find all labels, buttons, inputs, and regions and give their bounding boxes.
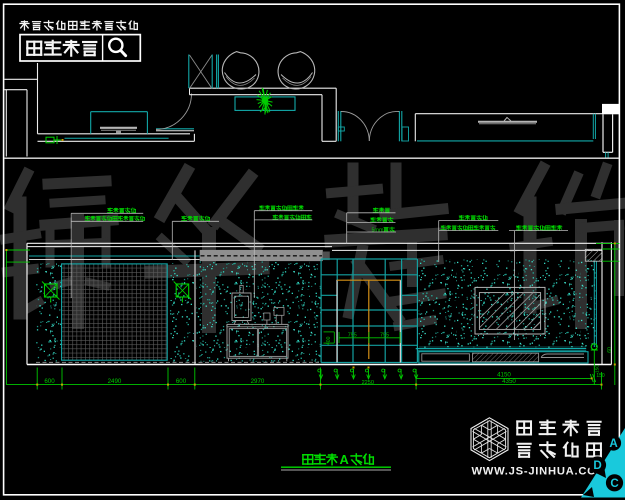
svg-text:5mm: 5mm [372, 228, 384, 234]
svg-text:C: C [610, 477, 619, 490]
svg-text:150: 150 [596, 373, 605, 379]
svg-text:WWW.JS-JINHUA.COM: WWW.JS-JINHUA.COM [472, 466, 607, 478]
svg-text:2250: 2250 [362, 380, 374, 386]
svg-text:4350: 4350 [502, 378, 516, 385]
svg-text:D: D [593, 459, 601, 472]
svg-text:60: 60 [607, 347, 613, 353]
svg-text:600: 600 [176, 378, 187, 385]
svg-text:755: 755 [380, 333, 389, 339]
svg-text:A: A [609, 437, 618, 450]
svg-text:A: A [340, 452, 349, 467]
svg-text:755: 755 [348, 333, 357, 339]
svg-text:2970: 2970 [251, 378, 265, 385]
svg-text:600: 600 [44, 378, 55, 385]
svg-text:400: 400 [326, 336, 332, 345]
svg-text:2490: 2490 [108, 378, 122, 385]
svg-text:150: 150 [595, 365, 601, 373]
